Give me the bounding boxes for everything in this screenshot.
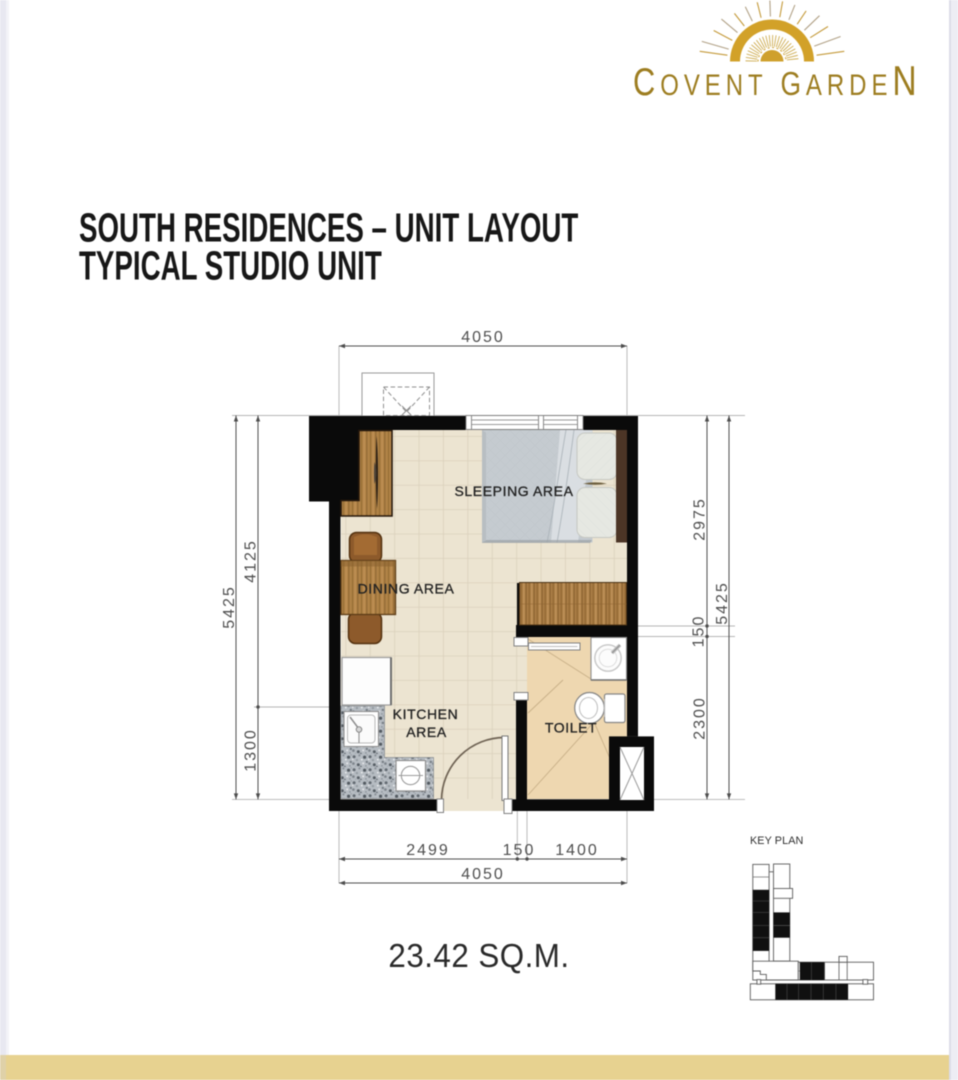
svg-text:2300: 2300	[692, 696, 709, 740]
svg-text:150: 150	[691, 615, 708, 648]
svg-text:5425: 5425	[221, 585, 238, 629]
svg-text:23.42 SQ.M.: 23.42 SQ.M.	[388, 937, 569, 974]
svg-text:COVENT GARDEN: COVENT GARDEN	[633, 59, 922, 105]
svg-text:5425: 5425	[714, 581, 731, 625]
svg-text:1400: 1400	[555, 842, 599, 859]
svg-text:SLEEPING AREA: SLEEPING AREA	[454, 483, 573, 499]
svg-text:TOILET: TOILET	[545, 720, 597, 736]
svg-text:TYPICAL STUDIO UNIT: TYPICAL STUDIO UNIT	[79, 243, 382, 289]
svg-text:4125: 4125	[243, 539, 260, 583]
svg-text:KITCHEN: KITCHEN	[393, 706, 459, 722]
svg-text:AREA: AREA	[406, 724, 447, 740]
svg-text:4050: 4050	[461, 866, 505, 883]
svg-text:2499: 2499	[406, 842, 450, 859]
svg-text:DINING AREA: DINING AREA	[358, 581, 455, 597]
svg-text:KEY PLAN: KEY PLAN	[750, 835, 803, 847]
svg-text:4050: 4050	[461, 329, 505, 346]
svg-text:2975: 2975	[692, 497, 709, 541]
svg-text:1300: 1300	[243, 728, 260, 772]
svg-text:150: 150	[503, 842, 536, 859]
